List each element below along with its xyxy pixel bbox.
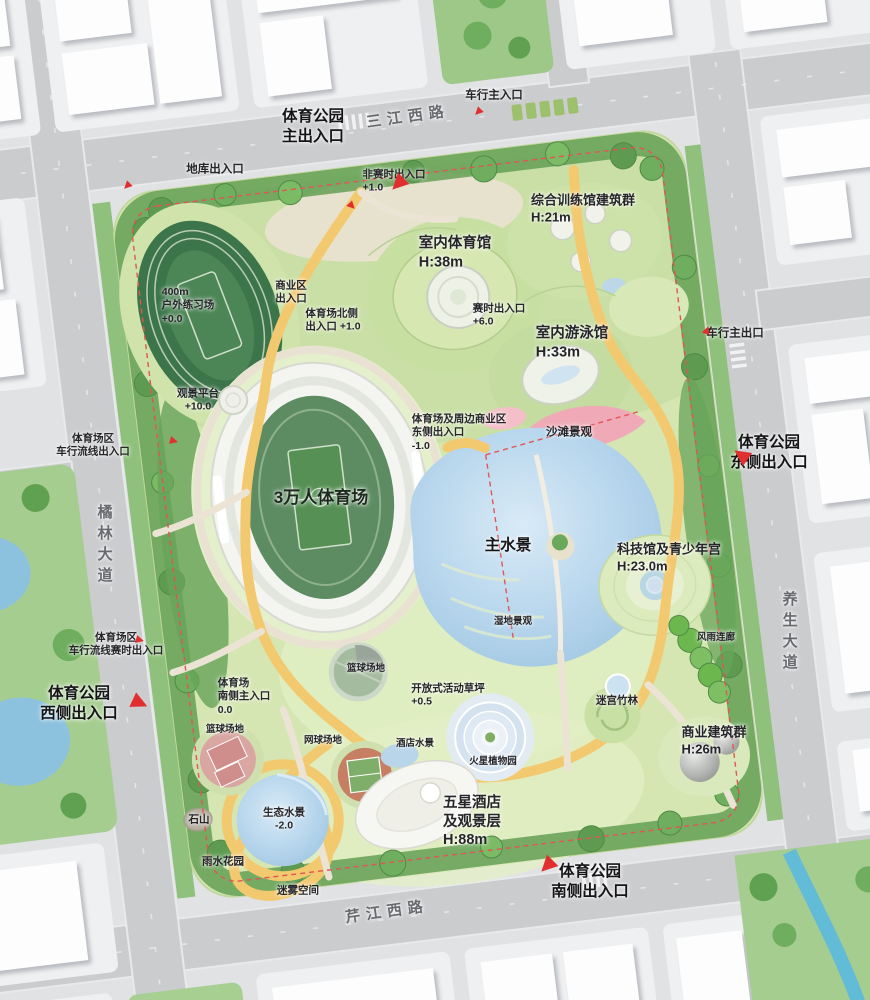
site-plan-canvas: [0, 0, 870, 1000]
site-plan: 三江西路 橘林大道 养生大道 芹江西路 体育公园 主出入口 车行主入口 地库出入…: [0, 0, 870, 1000]
park: [83, 123, 769, 919]
